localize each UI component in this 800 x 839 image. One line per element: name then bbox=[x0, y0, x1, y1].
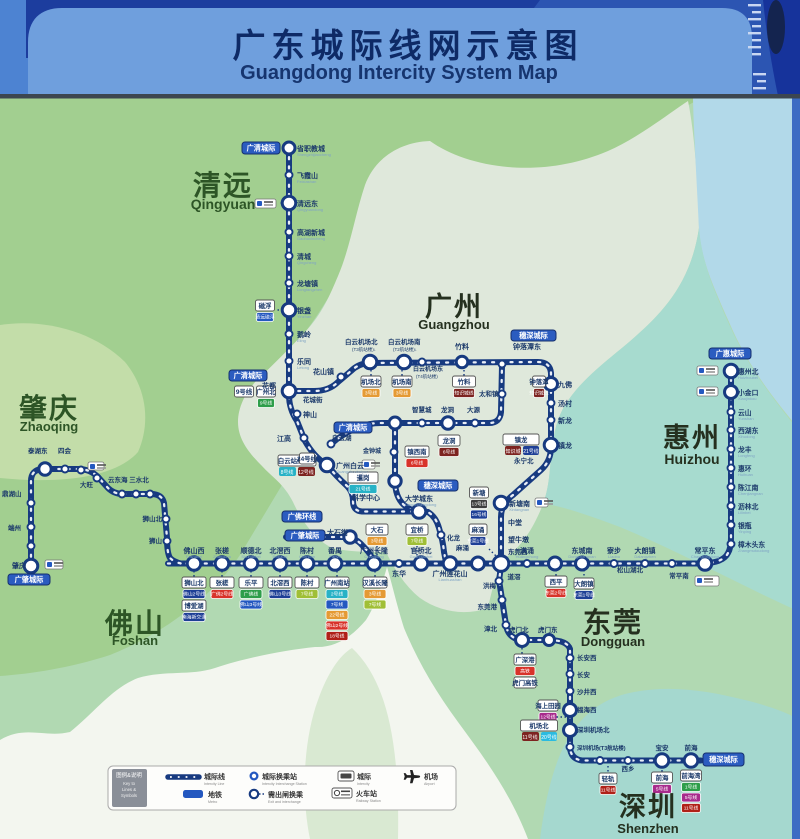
svg-text:16号线: 16号线 bbox=[472, 511, 487, 518]
svg-text:Yinping: Yinping bbox=[738, 529, 751, 534]
svg-text:Xintangnan: Xintangnan bbox=[509, 507, 529, 512]
svg-text:21号线: 21号线 bbox=[356, 486, 371, 493]
svg-text:东华: 东华 bbox=[392, 569, 406, 578]
svg-text:Key to: Key to bbox=[123, 781, 136, 786]
svg-text:九佛: 九佛 bbox=[557, 380, 572, 389]
svg-text:轻轨: 轻轨 bbox=[602, 774, 615, 783]
svg-text:城际: 城际 bbox=[357, 772, 371, 781]
svg-text:Lines &: Lines & bbox=[122, 787, 136, 792]
svg-text:大朗镇: 大朗镇 bbox=[574, 579, 594, 588]
svg-text:神山: 神山 bbox=[303, 410, 317, 419]
svg-text:Huangchong: Huangchong bbox=[516, 554, 539, 559]
svg-text:6号线: 6号线 bbox=[411, 460, 423, 467]
svg-text:佛山2号线: 佛山2号线 bbox=[326, 622, 348, 629]
svg-text:钟落潭: 钟落潭 bbox=[529, 377, 549, 386]
svg-text:虎门高铁: 虎门高铁 bbox=[512, 678, 538, 687]
svg-text:城际换乘站: 城际换乘站 bbox=[262, 772, 297, 781]
svg-text:沙井西: 沙井西 bbox=[577, 687, 597, 696]
svg-text:Dalangzhen: Dalangzhen bbox=[634, 554, 655, 559]
svg-text:Shundebei: Shundebei bbox=[241, 554, 260, 559]
svg-text:望牛墩: 望牛墩 bbox=[508, 535, 530, 544]
svg-text:张槎: 张槎 bbox=[216, 578, 229, 587]
svg-text:深圳: 深圳 bbox=[619, 792, 677, 822]
svg-text:Chenjiangnan: Chenjiangnan bbox=[738, 491, 763, 496]
svg-text:永宁北: 永宁北 bbox=[513, 456, 534, 465]
svg-text:汤村: 汤村 bbox=[558, 399, 572, 408]
svg-text:西平: 西平 bbox=[550, 578, 563, 586]
svg-text:广深港: 广深港 bbox=[515, 655, 535, 664]
svg-text:福海西: 福海西 bbox=[576, 705, 597, 714]
svg-text:知识城线: 知识城线 bbox=[454, 390, 473, 397]
svg-text:Foshan: Foshan bbox=[112, 633, 158, 648]
svg-text:花山镇: 花山镇 bbox=[313, 367, 334, 376]
svg-text:龙洞: 龙洞 bbox=[440, 405, 455, 414]
svg-text:狮山北: 狮山北 bbox=[142, 514, 163, 523]
svg-text:需出闸换乘: 需出闸换乘 bbox=[268, 790, 304, 799]
svg-text:花都: 花都 bbox=[262, 381, 276, 390]
svg-text:Yinzhan: Yinzhan bbox=[297, 314, 311, 319]
svg-text:广肇城际: 广肇城际 bbox=[291, 531, 321, 540]
svg-text:广惠城际: 广惠城际 bbox=[716, 349, 746, 358]
svg-text:Intercity Line: Intercity Line bbox=[204, 782, 224, 786]
svg-text:Qingyuan: Qingyuan bbox=[191, 196, 256, 212]
svg-text:机场北: 机场北 bbox=[361, 377, 381, 386]
svg-text:Shengzhijiaocheng: Shengzhijiaocheng bbox=[297, 152, 331, 157]
svg-text:大源: 大源 bbox=[467, 405, 481, 414]
svg-text:佛山3号线: 佛山3号线 bbox=[240, 601, 262, 608]
svg-text:穗深城际: 穗深城际 bbox=[519, 331, 549, 340]
svg-text:龙洞: 龙洞 bbox=[442, 436, 456, 445]
svg-text:5号线: 5号线 bbox=[685, 794, 697, 801]
svg-text:西乡: 西乡 bbox=[622, 765, 635, 773]
svg-text:东莞港: 东莞港 bbox=[478, 602, 498, 611]
svg-text:肇庆: 肇庆 bbox=[11, 561, 26, 570]
svg-text:Eling: Eling bbox=[297, 338, 306, 343]
svg-text:Longtangzhen: Longtangzhen bbox=[297, 287, 322, 292]
svg-text:四会: 四会 bbox=[58, 446, 72, 455]
svg-text:9号线: 9号线 bbox=[260, 400, 272, 407]
svg-text:Letong: Letong bbox=[297, 365, 309, 370]
svg-text:知识城: 知识城 bbox=[505, 448, 520, 455]
svg-text:虎门北: 虎门北 bbox=[509, 625, 529, 634]
svg-text:Lilinbei: Lilinbei bbox=[738, 510, 751, 515]
svg-text:Shenzhen: Shenzhen bbox=[617, 821, 678, 836]
svg-text:白云机场北: 白云机场北 bbox=[345, 337, 378, 346]
svg-text:大旺: 大旺 bbox=[80, 480, 94, 489]
svg-text:穗深城际: 穗深城际 bbox=[709, 755, 739, 764]
svg-text:宝安: 宝安 bbox=[656, 743, 670, 752]
svg-text:南海新交通: 南海新交通 bbox=[182, 614, 206, 621]
svg-text:Guangzhoubaiyun: Guangzhoubaiyun bbox=[336, 469, 368, 474]
svg-text:东莞1号线: 东莞1号线 bbox=[573, 592, 595, 599]
svg-text:2号线: 2号线 bbox=[331, 591, 343, 598]
svg-text:东莞2号线: 东莞2号线 bbox=[545, 590, 567, 597]
svg-text:大石街: 大石街 bbox=[327, 528, 348, 537]
svg-text:花城街: 花城街 bbox=[303, 395, 323, 404]
svg-text:Zhaoqing: Zhaoqing bbox=[20, 419, 79, 434]
svg-text:镇龙: 镇龙 bbox=[515, 435, 528, 444]
svg-text:(T4航站楼): (T4航站楼) bbox=[416, 373, 438, 380]
svg-text:大石: 大石 bbox=[371, 525, 384, 534]
svg-text:Qingyuandong: Qingyuandong bbox=[297, 207, 323, 212]
svg-text:鼎湖山: 鼎湖山 bbox=[2, 489, 22, 498]
svg-text:广清城际: 广清城际 bbox=[247, 144, 277, 153]
svg-text:Exit and interchange: Exit and interchange bbox=[268, 800, 301, 804]
svg-text:Feixiashan: Feixiashan bbox=[297, 179, 316, 184]
svg-text:狮山北: 狮山北 bbox=[183, 578, 204, 587]
svg-text:惠州: 惠州 bbox=[663, 423, 721, 453]
svg-text:智慧城: 智慧城 bbox=[412, 405, 432, 414]
svg-text:东莞1号线: 东莞1号线 bbox=[467, 538, 489, 545]
svg-text:Gaohuxincheng: Gaohuxincheng bbox=[297, 236, 325, 241]
svg-text:火车站: 火车站 bbox=[356, 789, 377, 798]
svg-text:Zhangcha: Zhangcha bbox=[213, 554, 232, 559]
svg-text:Beijiaoxi: Beijiaoxi bbox=[273, 554, 288, 559]
svg-text:Guanqiaobei: Guanqiaobei bbox=[410, 554, 433, 559]
svg-text:11号线: 11号线 bbox=[522, 734, 537, 741]
svg-text:白云机场东: 白云机场东 bbox=[413, 365, 443, 373]
svg-text:广东城际线网示意图: 广东城际线网示意图 bbox=[233, 27, 584, 64]
svg-text:21号线: 21号线 bbox=[523, 448, 539, 455]
svg-text:清远磁浮: 清远磁浮 bbox=[255, 314, 274, 321]
svg-text:Changlong: Changlong bbox=[364, 554, 383, 559]
svg-text:20号线: 20号线 bbox=[541, 734, 557, 741]
svg-text:常平南: 常平南 bbox=[669, 571, 689, 580]
svg-text:钟落潭东: 钟落潭东 bbox=[513, 342, 541, 351]
svg-text:Dongchengnan: Dongchengnan bbox=[568, 554, 595, 559]
svg-text:Airport: Airport bbox=[424, 782, 435, 786]
svg-text:地铁: 地铁 bbox=[208, 790, 222, 799]
svg-text:佛山3号线: 佛山3号线 bbox=[269, 591, 291, 598]
svg-text:(T3航站楼)↓: (T3航站楼)↓ bbox=[352, 346, 376, 353]
svg-text:虎门东: 虎门东 bbox=[538, 625, 558, 634]
svg-text:Dongguan: Dongguan bbox=[581, 634, 645, 649]
svg-text:海上田园: 海上田园 bbox=[535, 701, 561, 710]
svg-text:Metro: Metro bbox=[208, 800, 217, 804]
svg-text:北滘西: 北滘西 bbox=[270, 578, 290, 587]
svg-text:7号线: 7号线 bbox=[331, 601, 343, 608]
svg-text:广佛2号线: 广佛2号线 bbox=[211, 591, 233, 598]
svg-text:Huizhou: Huizhou bbox=[664, 451, 719, 467]
svg-text:博爱湖: 博爱湖 bbox=[184, 601, 204, 610]
svg-text:Yunshan: Yunshan bbox=[738, 416, 754, 421]
svg-text:广清城际: 广清城际 bbox=[234, 371, 264, 380]
svg-text:Liaobu: Liaobu bbox=[608, 554, 620, 559]
svg-text:Chencun: Chencun bbox=[299, 554, 315, 559]
svg-text:汉溪长隆: 汉溪长隆 bbox=[362, 578, 388, 587]
svg-text:广州南站: 广州南站 bbox=[324, 578, 350, 587]
svg-text:Longfeng: Longfeng bbox=[738, 453, 755, 458]
svg-text:Huihuan: Huihuan bbox=[738, 472, 753, 477]
svg-text:麻涌: 麻涌 bbox=[455, 543, 470, 552]
svg-text:广佛环线: 广佛环线 bbox=[288, 512, 318, 521]
svg-text:云东海 三水北: 云东海 三水北 bbox=[108, 475, 149, 484]
svg-text:知识城线: 知识城线 bbox=[529, 390, 548, 397]
svg-text:中堂: 中堂 bbox=[508, 518, 522, 527]
svg-text:漳北: 漳北 bbox=[484, 624, 498, 633]
svg-text:13号线: 13号线 bbox=[472, 501, 487, 508]
svg-text:Zhangmutoudong: Zhangmutoudong bbox=[738, 548, 769, 553]
svg-text:Lianhuashan: Lianhuashan bbox=[439, 577, 462, 582]
svg-text:Intercity Interchange Station: Intercity Interchange Station bbox=[262, 782, 307, 786]
svg-text:Daxuechengdong: Daxuechengdong bbox=[405, 502, 436, 507]
svg-text:科学中心: 科学中心 bbox=[352, 493, 380, 502]
svg-text:江高: 江高 bbox=[277, 434, 291, 443]
svg-text:3号线: 3号线 bbox=[369, 591, 381, 598]
svg-text:Guangzhou: Guangzhou bbox=[418, 317, 490, 332]
svg-text:6号线: 6号线 bbox=[443, 449, 455, 456]
svg-text:12号线: 12号线 bbox=[298, 469, 314, 476]
svg-text:(T2航站楼)↓: (T2航站楼)↓ bbox=[393, 346, 417, 353]
svg-text:11号线: 11号线 bbox=[601, 787, 616, 794]
svg-text:3号线: 3号线 bbox=[365, 390, 377, 397]
svg-text:Intercity: Intercity bbox=[357, 782, 370, 786]
svg-text:镇龙: 镇龙 bbox=[558, 441, 572, 450]
svg-text:竹料: 竹料 bbox=[454, 342, 469, 351]
svg-text:长安西: 长安西 bbox=[577, 653, 597, 662]
svg-text:7号线: 7号线 bbox=[301, 591, 313, 598]
svg-text:广佛线: 广佛线 bbox=[244, 591, 259, 598]
svg-text:机场北: 机场北 bbox=[529, 721, 549, 730]
svg-text:穗深城际: 穗深城际 bbox=[424, 481, 454, 490]
svg-text:前海: 前海 bbox=[656, 773, 669, 782]
svg-text:金钟城: 金钟城 bbox=[362, 447, 381, 455]
svg-text:新龙: 新龙 bbox=[558, 416, 572, 425]
svg-text:7号线: 7号线 bbox=[411, 538, 423, 545]
svg-text:Qingcheng: Qingcheng bbox=[297, 260, 316, 265]
svg-text:镇西南: 镇西南 bbox=[407, 447, 427, 456]
svg-text:乐平: 乐平 bbox=[245, 578, 258, 587]
svg-text:1号线: 1号线 bbox=[685, 784, 697, 791]
svg-text:Changpingdong: Changpingdong bbox=[691, 554, 719, 559]
svg-text:24号线: 24号线 bbox=[297, 454, 317, 463]
svg-text:3号线: 3号线 bbox=[371, 538, 383, 545]
svg-text:22号线: 22号线 bbox=[330, 612, 345, 619]
svg-text:图例&说明: 图例&说明 bbox=[116, 771, 142, 779]
svg-text:松山湖北: 松山湖北 bbox=[617, 565, 644, 574]
svg-text:麻涌: 麻涌 bbox=[471, 525, 485, 534]
svg-text:深圳机场(T3航站楼): 深圳机场(T3航站楼) bbox=[577, 744, 626, 752]
svg-text:9号线: 9号线 bbox=[236, 387, 253, 396]
svg-text:Xihudong: Xihudong bbox=[738, 434, 755, 439]
svg-text:高铁: 高铁 bbox=[520, 668, 530, 675]
svg-text:Panyu: Panyu bbox=[329, 554, 340, 559]
svg-text:新塘: 新塘 bbox=[473, 488, 486, 497]
svg-text:白云湖: 白云湖 bbox=[332, 433, 352, 442]
svg-text:磁浮: 磁浮 bbox=[259, 301, 272, 310]
svg-text:陈村: 陈村 bbox=[301, 578, 314, 587]
svg-text:深圳机场北: 深圳机场北 bbox=[577, 725, 610, 734]
svg-text:广清城际: 广清城际 bbox=[339, 423, 369, 432]
svg-text:18号线: 18号线 bbox=[330, 633, 345, 640]
svg-text:化龙: 化龙 bbox=[447, 533, 461, 542]
svg-text:狮山: 狮山 bbox=[148, 536, 162, 545]
svg-text:竹料: 竹料 bbox=[457, 377, 471, 386]
svg-text:洪梅: 洪梅 bbox=[483, 581, 497, 590]
svg-text:Huizhoubei: Huizhoubei bbox=[738, 375, 758, 380]
svg-text:端州: 端州 bbox=[8, 523, 21, 532]
svg-text:3号线: 3号线 bbox=[396, 390, 408, 397]
svg-text:城际线: 城际线 bbox=[204, 772, 225, 781]
svg-text:长安: 长安 bbox=[577, 670, 591, 679]
svg-text:Foshanxi: Foshanxi bbox=[186, 554, 202, 559]
svg-text:白云机场南: 白云机场南 bbox=[388, 337, 421, 346]
svg-text:11号线: 11号线 bbox=[684, 805, 699, 812]
svg-text:Xiaojinkou: Xiaojinkou bbox=[738, 396, 756, 401]
svg-text:8号线: 8号线 bbox=[281, 469, 294, 476]
svg-text:道滘: 道滘 bbox=[508, 572, 522, 581]
svg-text:7号线: 7号线 bbox=[369, 601, 381, 608]
svg-text:广肇城际: 广肇城际 bbox=[15, 575, 45, 584]
svg-text:泰湖东: 泰湖东 bbox=[27, 446, 48, 455]
svg-text:宜桥: 宜桥 bbox=[411, 525, 424, 534]
svg-text:Symbols: Symbols bbox=[121, 793, 137, 798]
svg-text:佛山2号线: 佛山2号线 bbox=[183, 591, 205, 598]
svg-text:前海湾: 前海湾 bbox=[681, 771, 701, 780]
svg-text:前海: 前海 bbox=[685, 743, 699, 752]
svg-text:机场: 机场 bbox=[424, 772, 438, 781]
svg-text:Railway Station: Railway Station bbox=[356, 799, 381, 803]
svg-text:太和镇: 太和镇 bbox=[478, 389, 499, 398]
svg-text:机场南: 机场南 bbox=[392, 377, 412, 386]
svg-text:暹岗: 暹岗 bbox=[357, 473, 370, 482]
svg-text:Guangdong Intercity System Map: Guangdong Intercity System Map bbox=[240, 62, 558, 84]
